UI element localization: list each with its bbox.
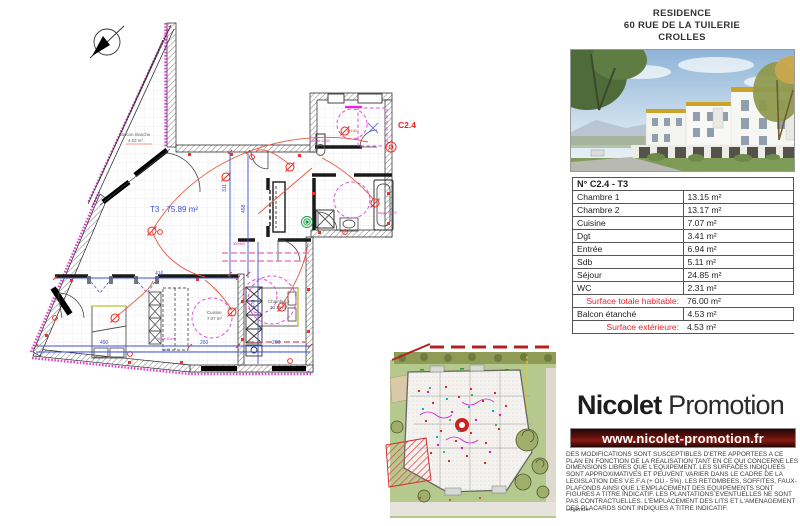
- total-exterior-row: Surface extérieure:4.53 m²: [573, 321, 794, 334]
- balcony-label: Balcon étanche: [120, 132, 151, 137]
- legend-label: Légende:: [566, 507, 590, 513]
- table-row: Sdb5.11 m²: [573, 256, 794, 269]
- trappe-label: Trappe 70x70: [376, 211, 397, 215]
- table-row: Chambre 213.17 m²: [573, 204, 794, 217]
- residence-title: RESIDENCE 60 RUE DE LA TUILERIE CROLLES: [566, 8, 798, 44]
- table-row: Séjour24.85 m²: [573, 269, 794, 282]
- cuisine-area-label: 7.07 m²: [207, 316, 222, 321]
- meuble-label: Meuble 40x60: [310, 139, 330, 143]
- highlighted-unit: [386, 438, 431, 487]
- unit-code-label: C2.4: [398, 120, 416, 130]
- dim-470: 470: [251, 299, 257, 308]
- table-row: Entrée6.94 m²: [573, 243, 794, 256]
- dim-490: 490: [100, 340, 109, 346]
- table-row: Dgt3.41 m²: [573, 230, 794, 243]
- north-compass-icon: [90, 26, 124, 58]
- table-row: Chambre 113.15 m²: [573, 191, 794, 204]
- car: [591, 150, 604, 156]
- table-row: WC2.31 m²: [573, 282, 794, 295]
- residence-city: CROLLES: [566, 32, 798, 44]
- table-row: Cuisine7.07 m²: [573, 217, 794, 230]
- dim-416: 416: [155, 271, 164, 277]
- k600-label: 600x600: [233, 242, 245, 246]
- surface-table: N° C2.4 - T3 Chambre 113.15 m² Chambre 2…: [572, 177, 794, 334]
- dim-290: 290: [272, 340, 281, 346]
- table-title: N° C2.4 - T3: [573, 178, 794, 191]
- brand-logo: Nicolet Promotion: [577, 390, 799, 421]
- dim-458: 458: [241, 204, 247, 213]
- niche-label: Niche 40x40: [157, 337, 176, 341]
- dim-311: 311: [222, 184, 228, 192]
- building-render-photo: [570, 49, 795, 172]
- unit-area-label: T3 - 75.89 m²: [150, 205, 198, 214]
- brand-name-light: Promotion: [661, 390, 784, 420]
- diam-label: Ø130: [347, 128, 358, 133]
- website-bar: www.nicolet-promotion.fr: [570, 428, 796, 448]
- site-plan: [386, 344, 556, 518]
- plan-sheet-page: T3 - 75.89 m² C2.4 Balcon étanche 4.53 m…: [0, 0, 800, 526]
- dim-260: 260: [200, 340, 209, 346]
- chambre1-area-label: 13.15 m²: [270, 305, 288, 310]
- floor-plan: T3 - 75.89 m² C2.4 Balcon étanche 4.53 m…: [0, 0, 565, 526]
- brand-name-bold: Nicolet: [577, 390, 661, 420]
- balcony-area-label: 4.53 m²: [128, 138, 143, 143]
- residence-name: RESIDENCE: [566, 8, 798, 20]
- residence-address: 60 RUE DE LA TUILERIE: [566, 20, 798, 32]
- website-url: www.nicolet-promotion.fr: [602, 431, 764, 446]
- balcony-row: Balcon étanché4.53 m²: [573, 308, 794, 321]
- building-render: [571, 50, 795, 172]
- total-habitable-row: Surface totale habitable:76.00 m²: [573, 295, 794, 308]
- chambre1-label: Chambre 1: [268, 299, 290, 304]
- cuisine-label: Cuisine: [207, 310, 222, 315]
- disclaimer-text: DES MODIFICATIONS SONT SUSCEPTIBLES D'ET…: [566, 452, 800, 512]
- dim-1640: 1640: [162, 348, 170, 352]
